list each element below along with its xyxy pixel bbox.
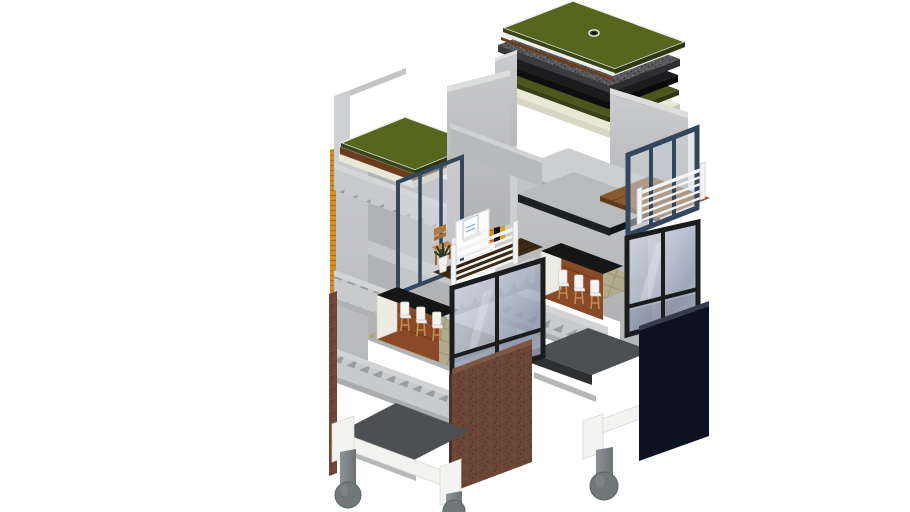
pilotis-leg xyxy=(443,491,465,512)
dark-facade-panel xyxy=(639,301,709,461)
leg-foot xyxy=(590,472,618,500)
leg-foot xyxy=(335,482,361,508)
model-viewport[interactable] xyxy=(0,0,910,512)
